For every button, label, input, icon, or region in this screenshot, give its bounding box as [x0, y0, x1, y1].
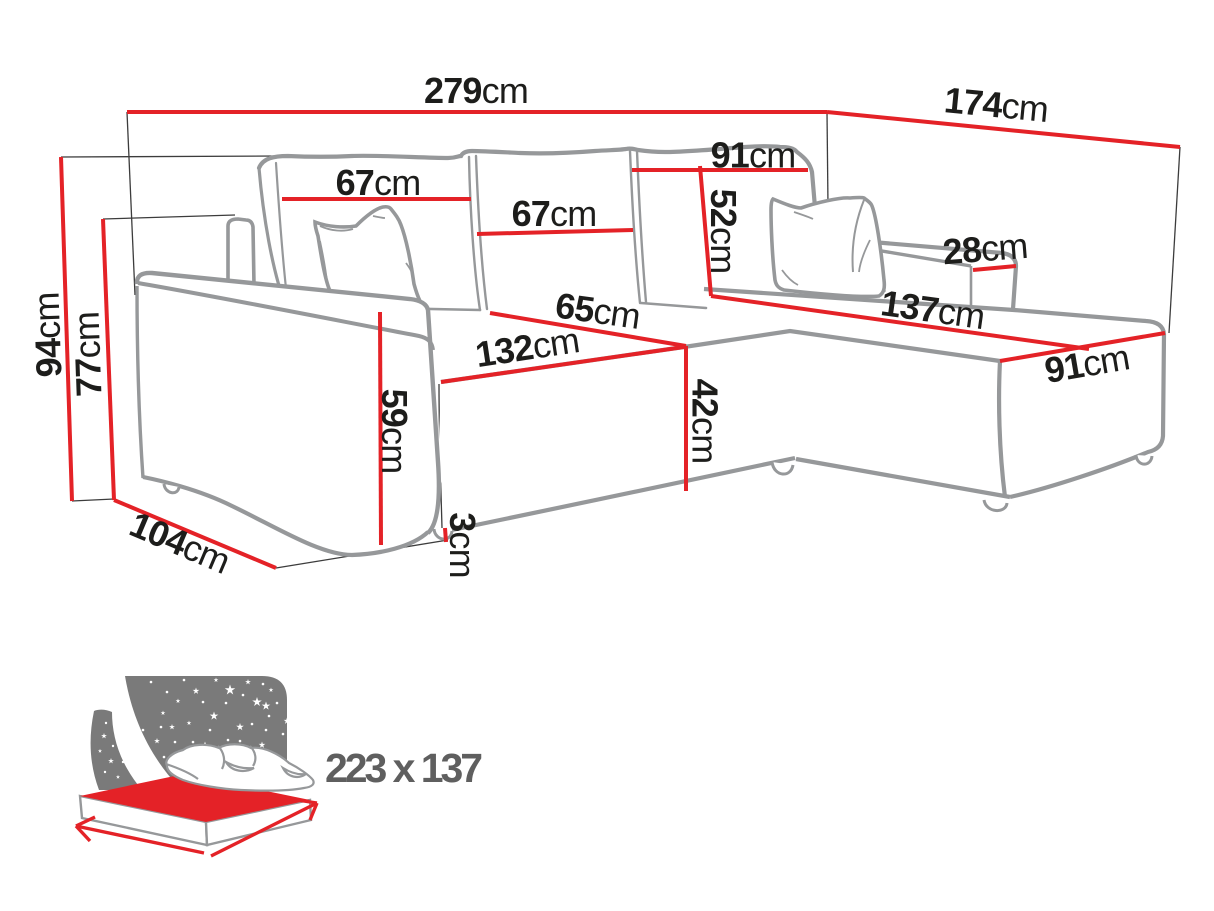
svg-text:223 x 137: 223 x 137 [325, 745, 483, 791]
svg-text:91cm: 91cm [711, 135, 796, 176]
svg-text:104cm: 104cm [124, 503, 236, 581]
svg-text:94cm: 94cm [26, 292, 70, 378]
svg-text:279cm: 279cm [424, 70, 528, 111]
svg-text:59cm: 59cm [374, 389, 415, 474]
svg-text:77cm: 77cm [66, 311, 110, 397]
svg-text:28cm: 28cm [941, 225, 1029, 273]
svg-text:42cm: 42cm [685, 379, 726, 464]
svg-text:67cm: 67cm [336, 162, 421, 203]
svg-text:174cm: 174cm [942, 79, 1050, 130]
svg-text:67cm: 67cm [512, 193, 597, 234]
svg-text:52cm: 52cm [703, 189, 744, 274]
svg-text:3cm: 3cm [442, 512, 483, 578]
